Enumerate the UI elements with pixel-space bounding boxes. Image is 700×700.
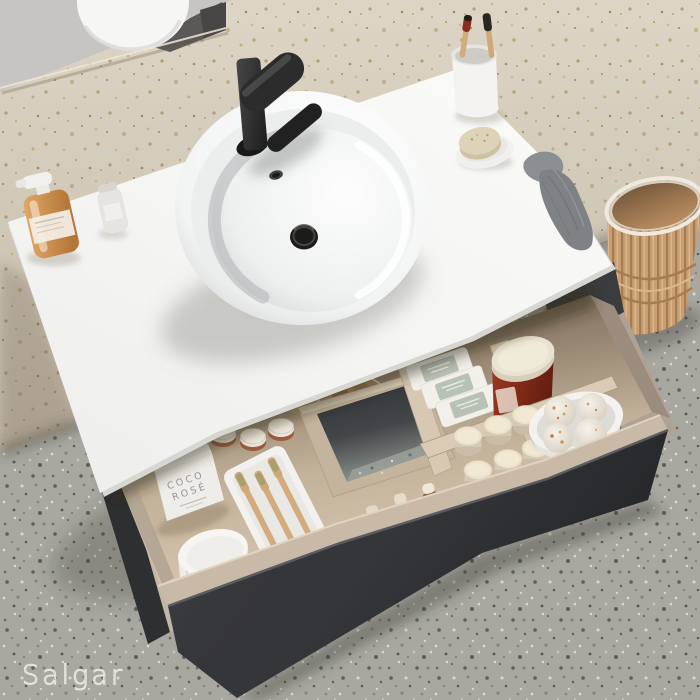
drain-cover <box>290 225 318 250</box>
bathroom-vanity-photo: COCO ROSÉ <box>0 0 700 700</box>
cream-jar <box>484 416 512 446</box>
brand-logo: Salgar <box>22 660 125 691</box>
cream-jar <box>454 427 482 457</box>
scene-canvas: COCO ROSÉ <box>0 0 700 700</box>
